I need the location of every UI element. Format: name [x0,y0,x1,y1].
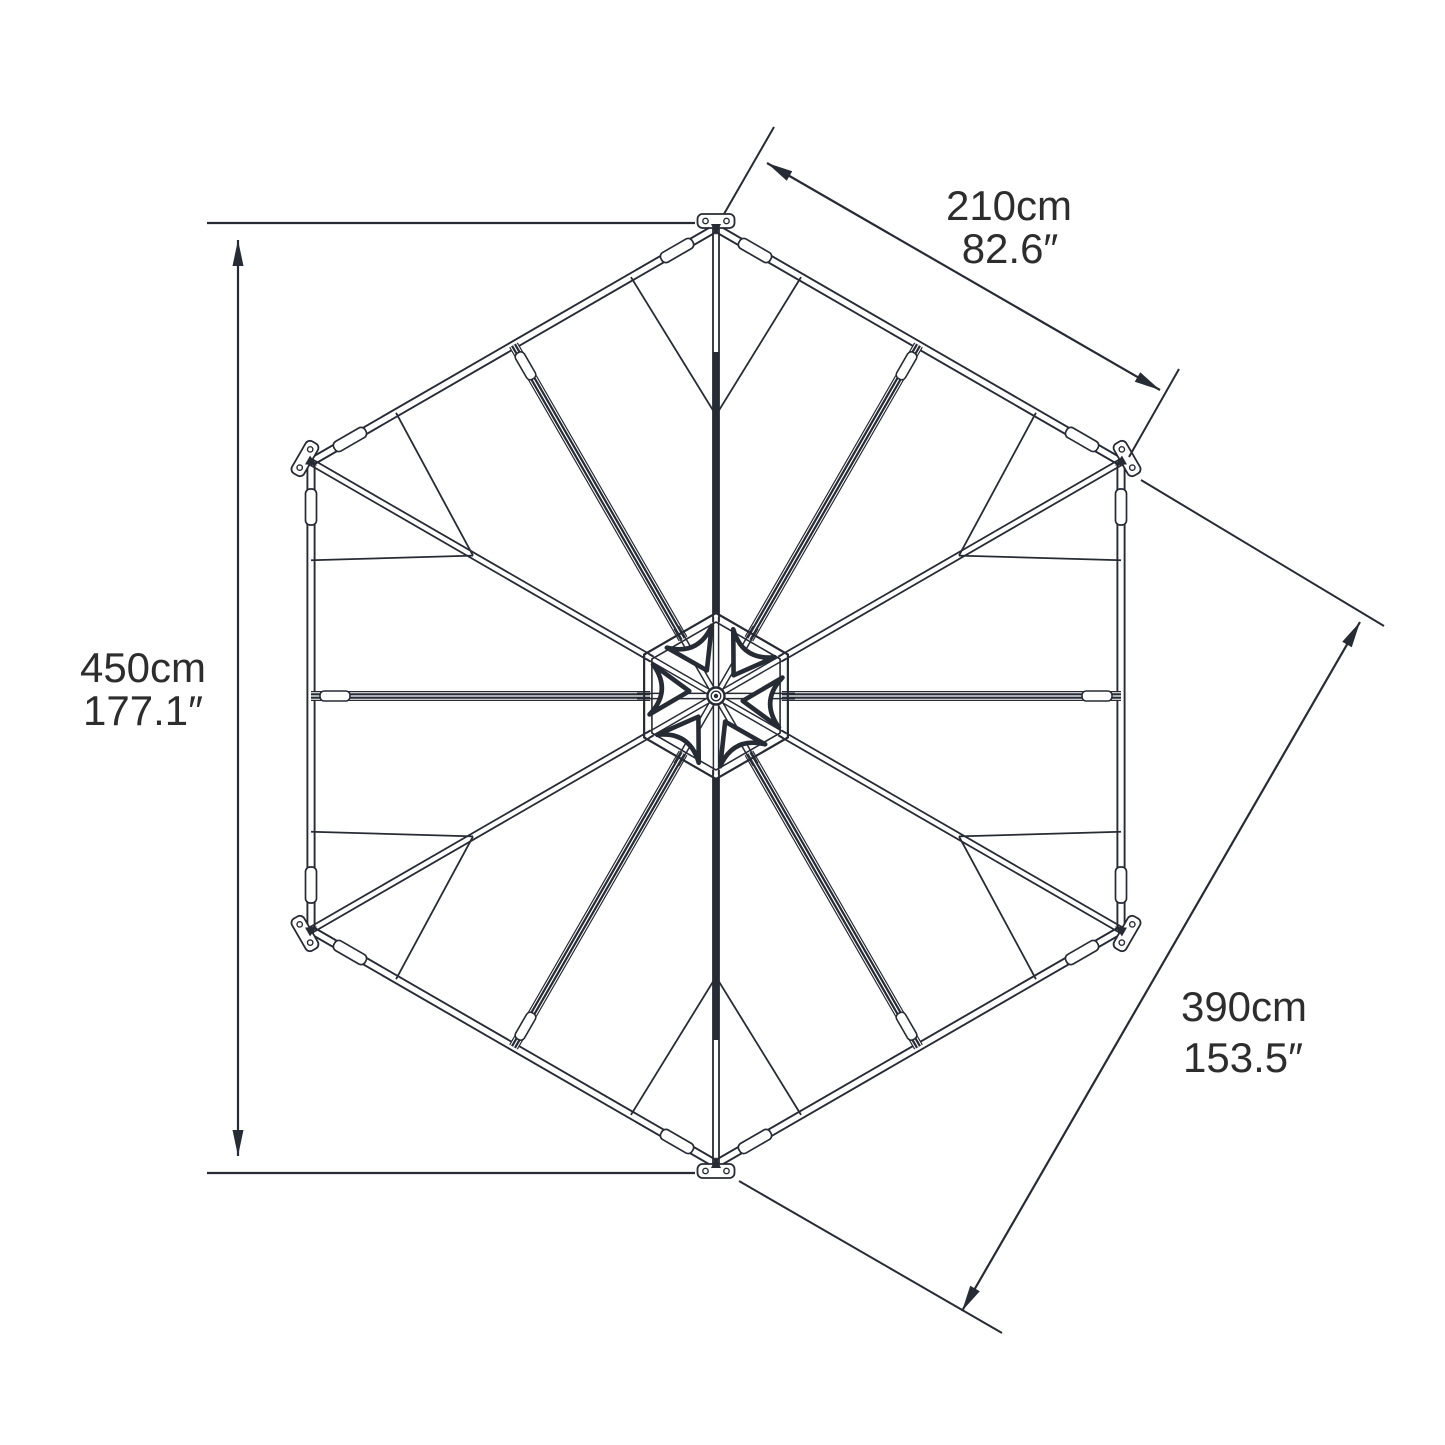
dimension-bottom-right-inch-label: 153.5″ [1183,1034,1303,1081]
dimension-bottom-right-cm-label: 390cm [1181,983,1307,1030]
gazebo-roof-plan-svg: 450cm 177.1″ 210cm 82.6″ 390cm 153.5″ [0,0,1445,1445]
gazebo-roof-diagram: 450cm 177.1″ 210cm 82.6″ 390cm 153.5″ [0,0,1445,1445]
dimension-top-right-cm-label: 210cm [946,182,1072,229]
dimension-left-inch-label: 177.1″ [83,687,203,734]
dimension-top-right-inch-label: 82.6″ [962,225,1059,272]
dimension-left-cm-label: 450cm [80,644,206,691]
center-hub [637,613,795,779]
